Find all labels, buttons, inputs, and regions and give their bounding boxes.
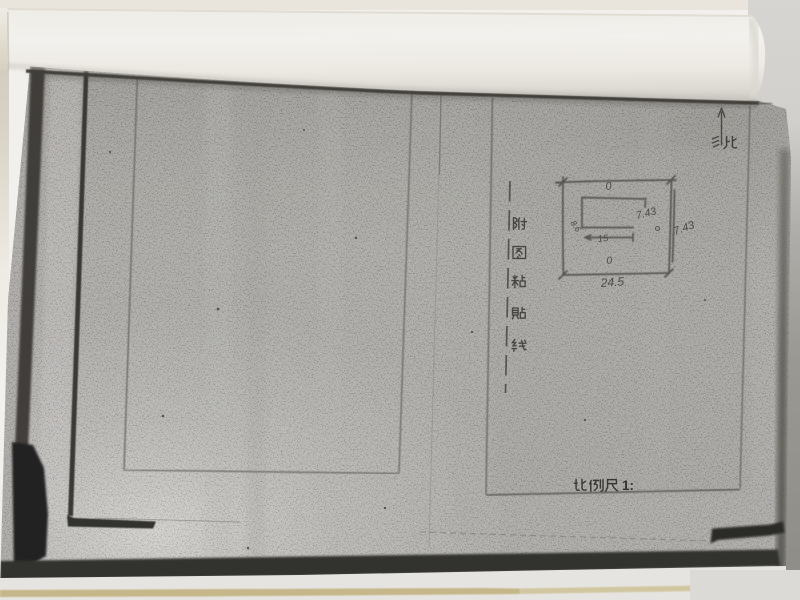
svg-text:24.5: 24.5 bbox=[599, 274, 625, 290]
svg-text:1:: 1: bbox=[622, 478, 634, 493]
svg-text:15: 15 bbox=[597, 233, 609, 245]
